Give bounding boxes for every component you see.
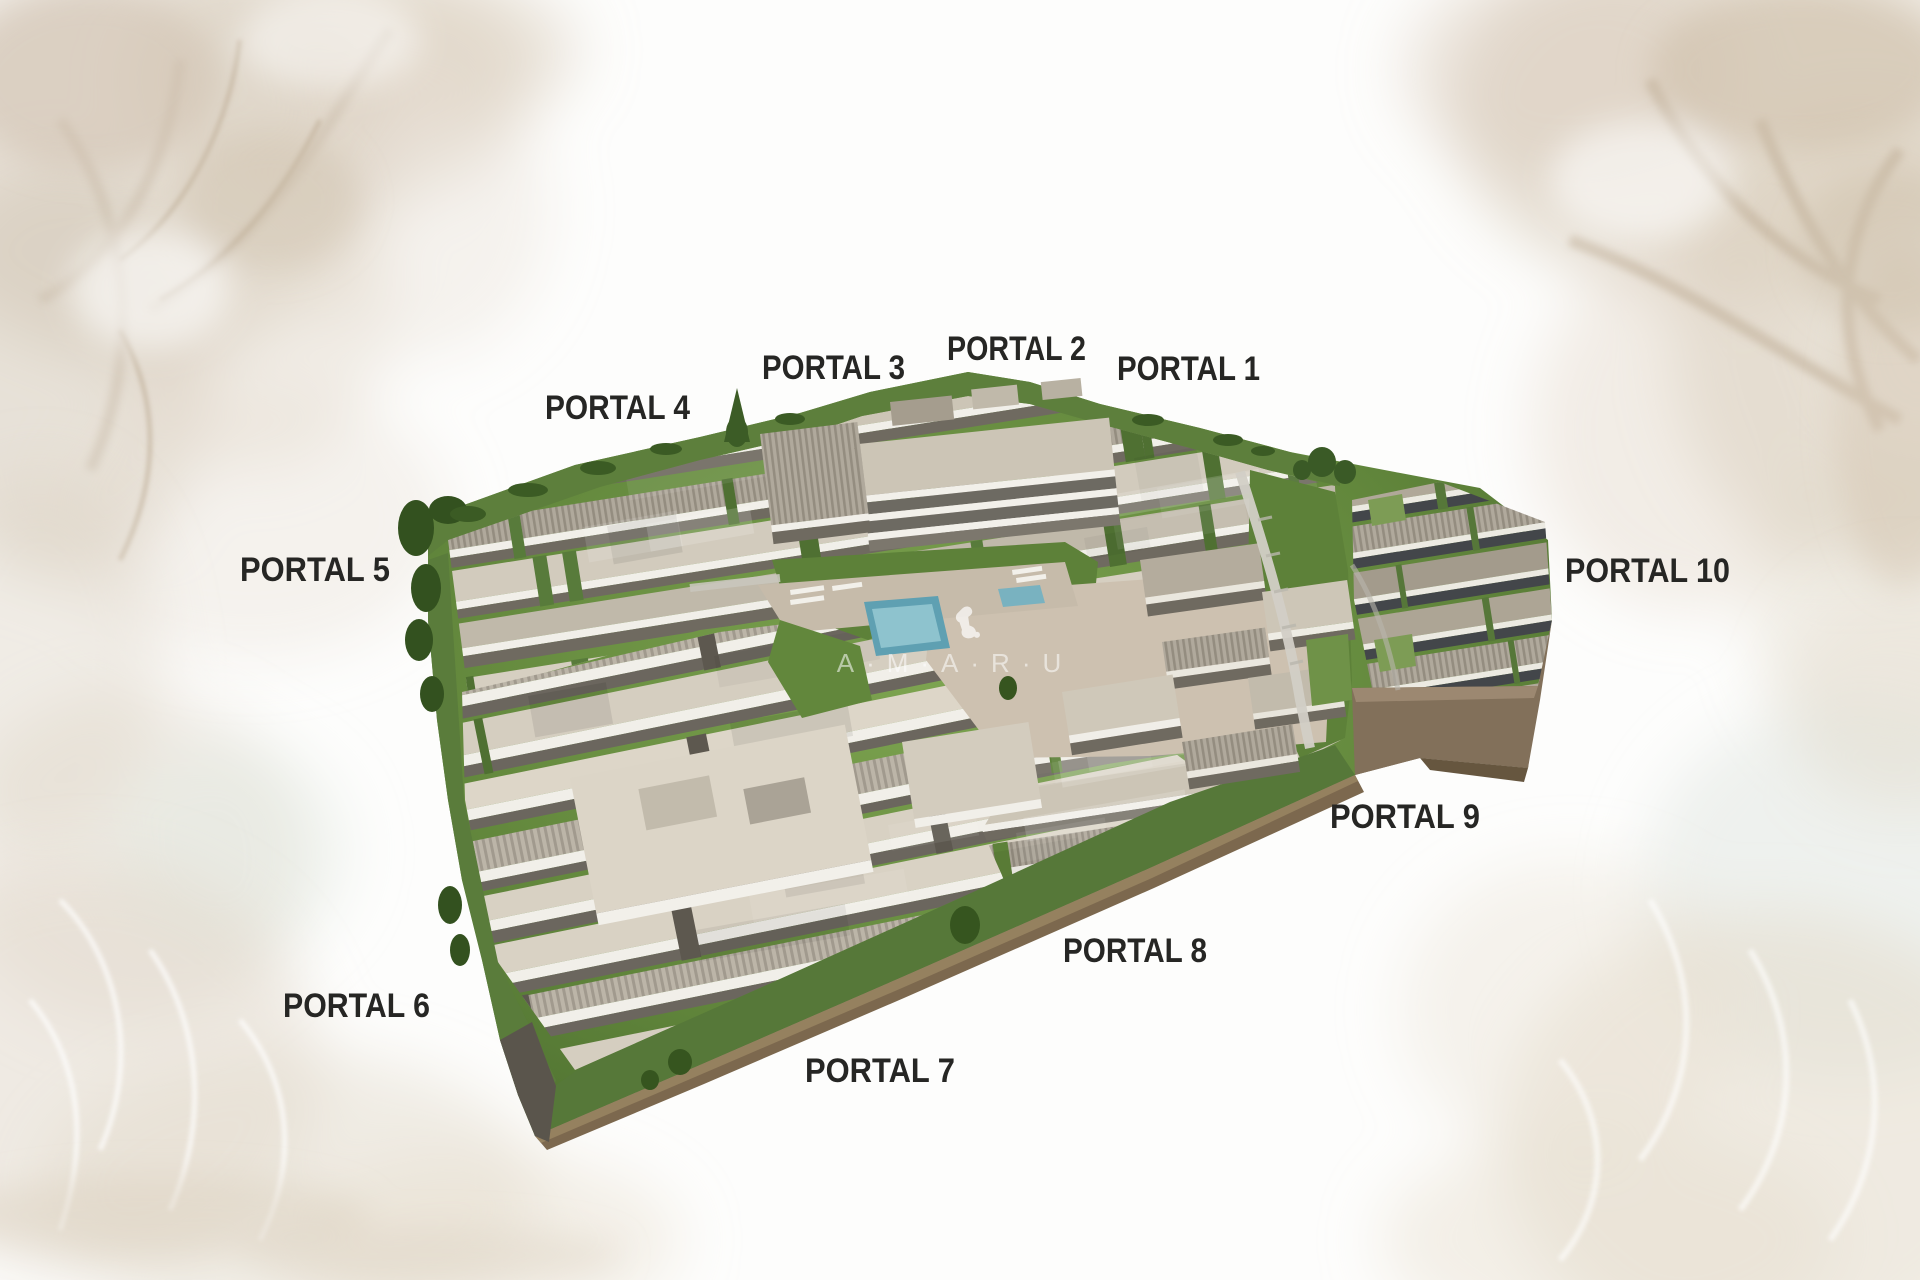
svg-text:PORTAL 2: PORTAL 2 — [947, 330, 1086, 368]
svg-text:PORTAL 1: PORTAL 1 — [1117, 350, 1260, 388]
svg-text:A·M·A·R·U: A·M·A·R·U — [837, 648, 1074, 678]
svg-text:PORTAL 3: PORTAL 3 — [762, 349, 905, 387]
svg-text:PORTAL 7: PORTAL 7 — [805, 1052, 955, 1090]
svg-text:PORTAL 5: PORTAL 5 — [240, 551, 390, 589]
svg-text:PORTAL 10: PORTAL 10 — [1565, 552, 1730, 590]
svg-text:PORTAL 6: PORTAL 6 — [283, 987, 430, 1025]
svg-text:PORTAL 4: PORTAL 4 — [545, 389, 690, 427]
svg-text:PORTAL 9: PORTAL 9 — [1330, 798, 1480, 836]
svg-text:PORTAL 8: PORTAL 8 — [1063, 932, 1207, 970]
